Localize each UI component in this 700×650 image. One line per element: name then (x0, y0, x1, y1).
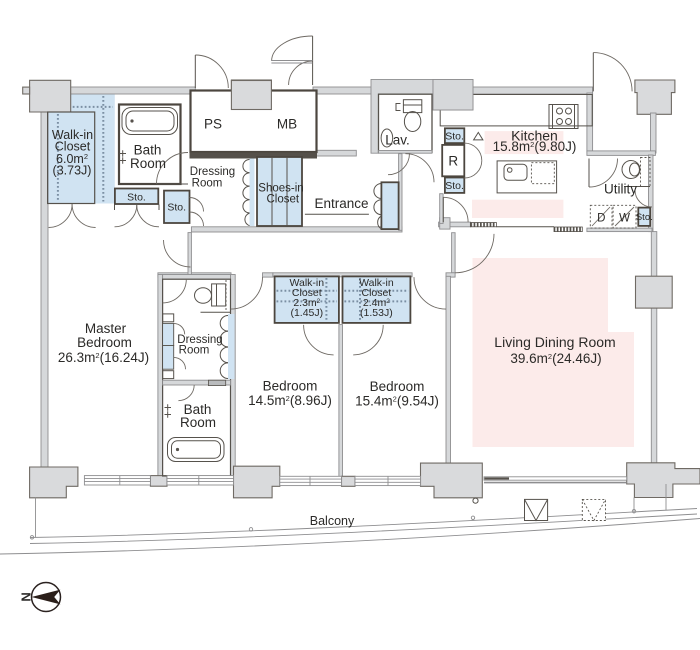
svg-text:Dressing: Dressing (190, 166, 235, 178)
svg-text:Utility: Utility (604, 182, 637, 197)
svg-text:(3.73J): (3.73J) (53, 164, 92, 178)
svg-text:Lav.: Lav. (385, 133, 410, 148)
svg-text:D: D (597, 213, 605, 225)
svg-text:(1.53J): (1.53J) (360, 307, 393, 319)
svg-text:39.6m2(24.46J): 39.6m2(24.46J) (510, 351, 601, 366)
svg-text:Sto.: Sto. (167, 202, 186, 214)
svg-text:N: N (19, 592, 34, 601)
svg-text:Room: Room (130, 156, 166, 171)
svg-text:Room: Room (180, 415, 216, 430)
svg-text:W: W (619, 213, 630, 225)
svg-text:Bedroom: Bedroom (263, 379, 318, 394)
svg-text:Sto.: Sto. (445, 180, 464, 192)
svg-text:Sto.: Sto. (636, 212, 653, 223)
svg-text:26.3m2(16.24J): 26.3m2(16.24J) (58, 350, 149, 365)
svg-text:Room: Room (192, 178, 223, 190)
svg-text:Bedroom: Bedroom (370, 379, 425, 394)
svg-text:15.8m2(9.80J): 15.8m2(9.80J) (493, 139, 577, 154)
svg-text:Bedroom: Bedroom (77, 335, 132, 350)
svg-text:PS: PS (204, 117, 222, 132)
svg-text:(1.45J): (1.45J) (290, 307, 323, 319)
svg-text:Room: Room (179, 345, 210, 357)
svg-text:MB: MB (277, 117, 297, 132)
svg-text:Sto.: Sto. (445, 131, 464, 143)
svg-text:Sto.: Sto. (127, 192, 146, 204)
svg-text:Closet: Closet (266, 194, 299, 206)
svg-text:15.4m2(9.54J): 15.4m2(9.54J) (355, 394, 439, 409)
svg-text:R: R (448, 154, 458, 169)
svg-text:14.5m2(8.96J): 14.5m2(8.96J) (248, 393, 332, 408)
svg-text:Master: Master (85, 321, 127, 336)
svg-text:Balcony: Balcony (310, 514, 355, 528)
svg-text:Living Dining Room: Living Dining Room (494, 334, 615, 350)
svg-text:Entrance: Entrance (314, 196, 368, 211)
